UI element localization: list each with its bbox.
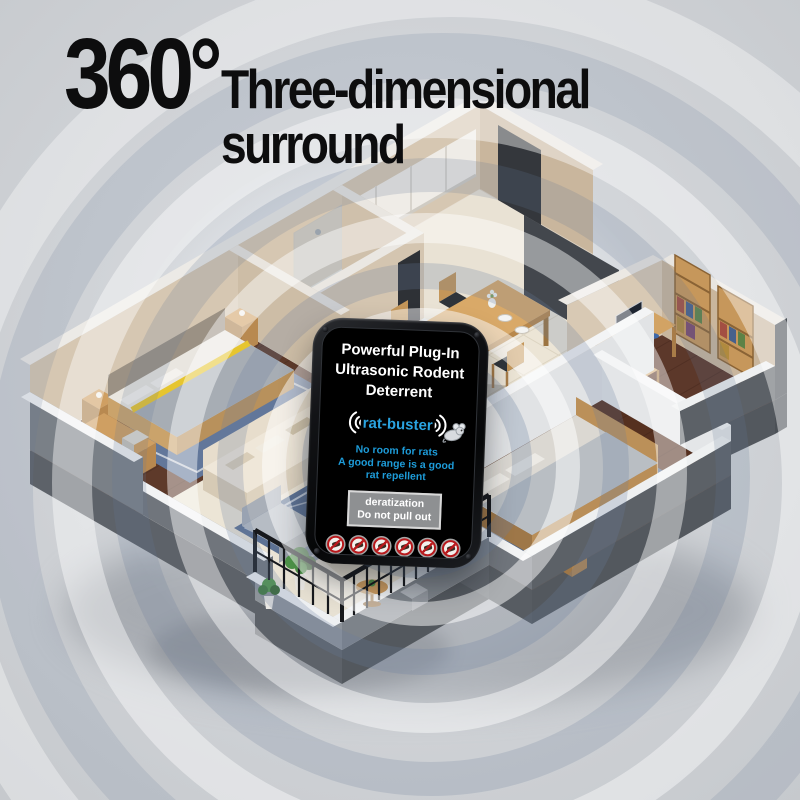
warning-label-line: Do not pull out [357,508,432,524]
device-bezel: Powerful Plug-In Ultrasonic Rodent Deter… [304,317,489,570]
screw-icon [314,548,320,554]
no-fly-icon [419,538,437,556]
sound-wave-left-icon [343,410,361,435]
brand-name: rat-buster [362,414,433,434]
screw-icon [466,554,472,560]
mouse-icon [438,419,469,445]
title-degree: 360° [64,24,218,124]
screw-icon [474,332,480,338]
warning-label: deratization Do not pull out [347,490,442,530]
pest-prohibition-row [315,534,472,557]
page-title: 360°Three-dimensional surround [64,24,736,172]
no-cockroach-icon [350,536,368,554]
no-spider-icon [373,537,391,555]
device-faceplate: Powerful Plug-In Ultrasonic Rodent Deter… [314,326,481,560]
device-heading: Powerful Plug-In Ultrasonic Rodent Deter… [321,339,479,405]
device-tagline: No room for rats A good range is a good … [318,442,475,485]
no-beetle-icon [442,539,460,557]
no-rat-icon [327,535,345,553]
ultrasonic-repeller-device: Powerful Plug-In Ultrasonic Rodent Deter… [304,317,489,570]
brand-row: rat-buster [319,408,476,440]
no-ant-icon [396,538,414,556]
title-text: Three-dimensional surround [221,62,736,172]
product-ad-canvas: Powerful Plug-In Ultrasonic Rodent Deter… [0,0,800,800]
